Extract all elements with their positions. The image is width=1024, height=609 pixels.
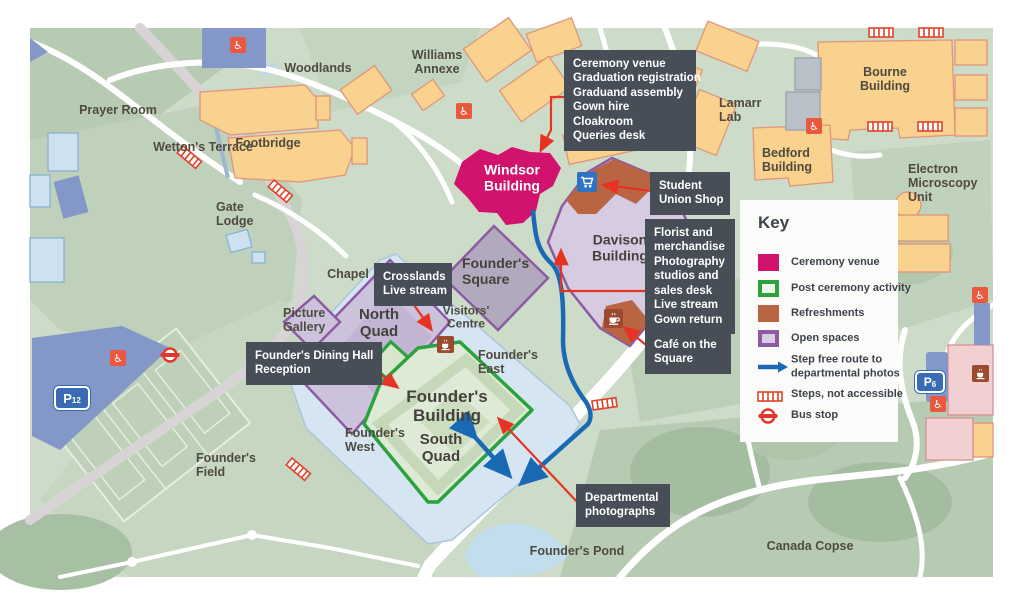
shop-cart-icon <box>577 172 597 192</box>
key-swatch-ceremony-venue <box>758 254 779 271</box>
accessible-icon: ♿ <box>230 37 246 53</box>
p6-parking-sign: P6 <box>915 371 945 393</box>
p12-letter: P <box>63 391 72 406</box>
cafe-icon <box>437 336 454 353</box>
graduation-campus-map: ♿ ♿ ♿ ♿ ♿ ♿ P12 P6 Woodlands Prayer Room… <box>0 0 1024 609</box>
key-label-open-spaces: Open spaces <box>791 332 859 346</box>
key-steps-icon <box>757 389 783 407</box>
key-label-ceremony-venue: Ceremony venue <box>791 256 880 270</box>
callout-cafe-on-the-square: Café on theSquare <box>645 331 731 374</box>
callout-dining-hall: Founder's Dining HallReception <box>246 342 382 385</box>
key-swatch-post-ceremony <box>758 280 779 297</box>
key-title: Key <box>758 213 789 233</box>
key-label-refreshments: Refreshments <box>791 307 864 321</box>
callout-crosslands: CrosslandsLive stream <box>374 263 452 306</box>
accessible-icon: ♿ <box>110 350 126 366</box>
key-label-bus-stop: Bus stop <box>791 409 838 423</box>
p12-number: 12 <box>72 396 81 405</box>
accessible-icon: ♿ <box>456 103 472 119</box>
accessible-icon: ♿ <box>930 396 946 412</box>
accessible-icon: ♿ <box>972 287 988 303</box>
callout-florist: Florist andmerchandisePhotographystudios… <box>645 219 735 334</box>
callout-ceremony-venue: Ceremony venueGraduation registrationGra… <box>564 50 696 151</box>
key-step-free-arrow-icon <box>756 360 790 379</box>
key-bus-stop-icon <box>758 406 778 431</box>
key-label-steps: Steps, not accessible <box>791 388 903 402</box>
key-label-post-ceremony: Post ceremony activity <box>791 282 911 296</box>
key-swatch-open-spaces <box>758 330 779 347</box>
cafe-icon <box>972 365 989 382</box>
p6-number: 6 <box>932 380 936 389</box>
accessible-icon: ♿ <box>806 118 822 134</box>
callout-departmental-photographs: Departmentalphotographs <box>576 484 670 527</box>
cafe-icon <box>604 309 623 328</box>
p12-parking-sign: P12 <box>54 386 90 410</box>
key-swatch-refreshments <box>758 305 779 322</box>
callout-student-union-shop: StudentUnion Shop <box>650 172 730 215</box>
p6-letter: P <box>924 375 932 389</box>
key-label-step-free: Step free route to departmental photos <box>791 353 900 381</box>
campus-map-canvas <box>0 0 1024 609</box>
